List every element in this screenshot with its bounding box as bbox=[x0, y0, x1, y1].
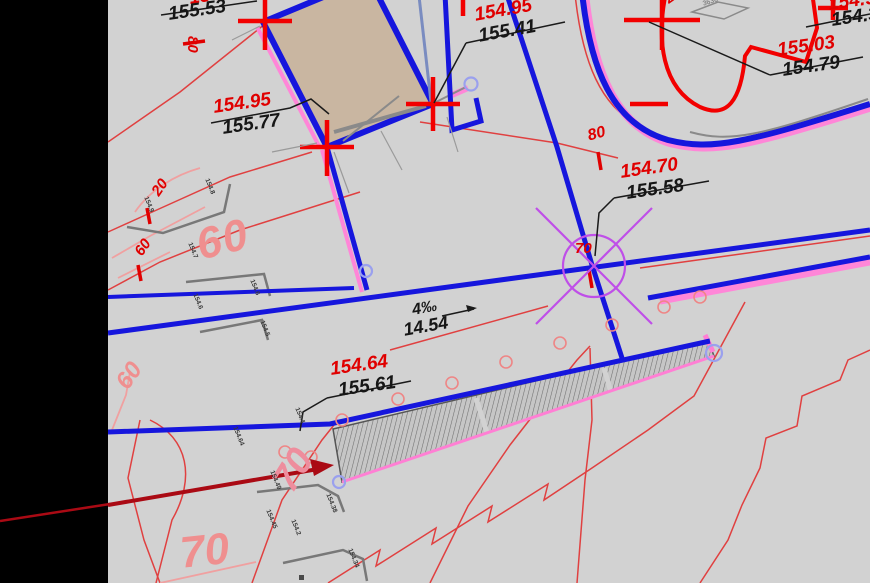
micro-elevation: 154.8 bbox=[203, 178, 215, 196]
micro-elevation: 154.45 bbox=[264, 509, 277, 530]
elev-topleft-existing: 155.53 bbox=[167, 0, 227, 24]
text-labels-layer: 154.4 155.53 80 154.95 155.77 154.95 155… bbox=[0, 0, 870, 583]
cad-viewport[interactable]: ТП 2 1 А Б В bbox=[0, 0, 870, 583]
micro-elevation: 154.9 bbox=[142, 196, 154, 214]
micro-elevation: 154.38 bbox=[324, 493, 337, 514]
micro-elevation: 154.6 bbox=[191, 293, 203, 311]
contour-label-80-left: 80 bbox=[185, 36, 200, 53]
micro-elevation: 154.5 bbox=[258, 320, 270, 338]
elev-corner-existing: 154.3 bbox=[830, 4, 870, 29]
micro-elevation: 154.64 bbox=[231, 426, 244, 447]
contour-label-60-small: 60 bbox=[132, 236, 154, 258]
micro-elevation: 154.2 bbox=[289, 519, 301, 537]
slope-length: 14.54 bbox=[402, 313, 449, 339]
block-note: 3636 bbox=[702, 0, 719, 8]
contour-label-60-left: 60 bbox=[112, 358, 147, 394]
micro-elevation: 154.34 bbox=[346, 548, 359, 569]
micro-elevation: 154.6 bbox=[248, 279, 260, 297]
contour-label-20: 20 bbox=[149, 176, 171, 198]
contour-label-70-point: 70 bbox=[575, 241, 592, 256]
contour-label-80-mid: 80 bbox=[586, 124, 607, 144]
contour-label-60-big: 60 bbox=[192, 212, 254, 268]
contour-label-70-big: 70 bbox=[178, 527, 231, 576]
micro-elevation: 154.4 bbox=[293, 407, 305, 425]
corner-note: 2.0 bbox=[662, 0, 686, 5]
